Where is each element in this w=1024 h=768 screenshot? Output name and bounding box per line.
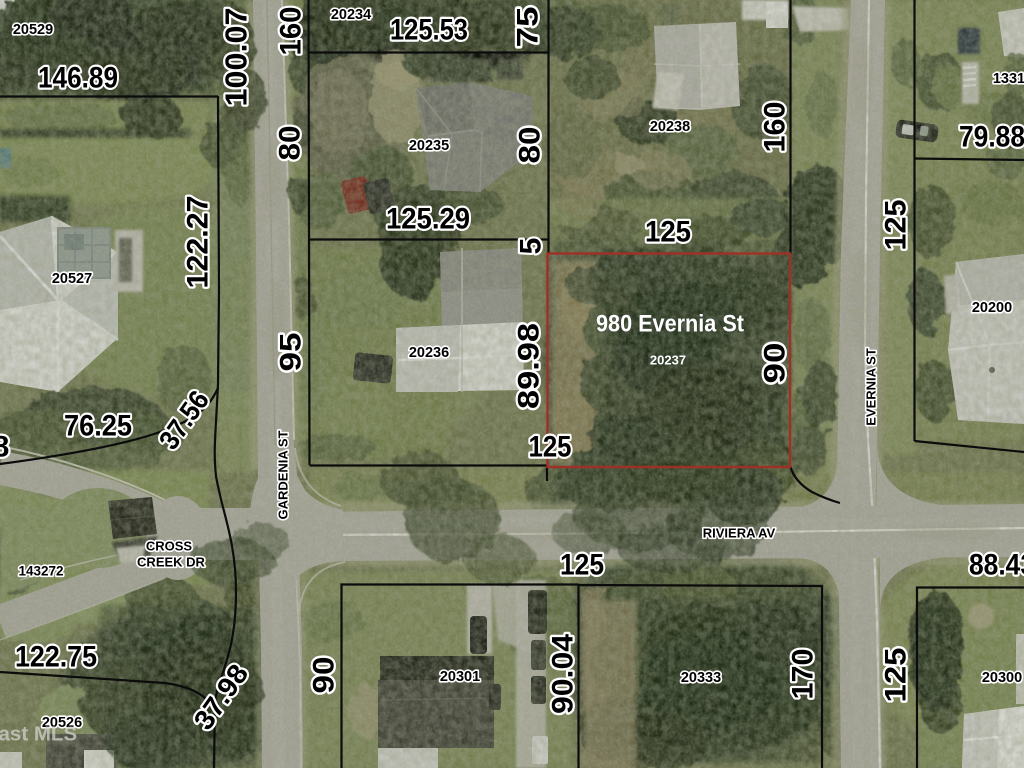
svg-text:13312: 13312 bbox=[993, 71, 1024, 87]
svg-text:5: 5 bbox=[515, 238, 548, 255]
svg-text:122.27: 122.27 bbox=[182, 196, 215, 289]
svg-text:20300: 20300 bbox=[982, 670, 1022, 686]
svg-text:GARDENIA ST: GARDENIA ST bbox=[276, 430, 291, 519]
svg-text:20234: 20234 bbox=[331, 7, 371, 23]
svg-text:90.04: 90.04 bbox=[547, 634, 580, 714]
svg-text:79.88: 79.88 bbox=[959, 121, 1024, 154]
svg-text:125: 125 bbox=[529, 431, 572, 464]
svg-text:980 Evernia St: 980 Evernia St bbox=[596, 311, 744, 338]
svg-text:125: 125 bbox=[560, 549, 604, 582]
svg-text:20333: 20333 bbox=[681, 670, 721, 686]
svg-text:160: 160 bbox=[275, 7, 308, 56]
svg-text:CREEK DR: CREEK DR bbox=[137, 555, 206, 570]
svg-text:122.75: 122.75 bbox=[15, 641, 97, 674]
svg-text:20235: 20235 bbox=[409, 138, 449, 154]
svg-text:90: 90 bbox=[308, 657, 341, 694]
svg-text:20237: 20237 bbox=[650, 353, 686, 368]
svg-text:8: 8 bbox=[0, 431, 9, 464]
svg-text:90: 90 bbox=[759, 343, 792, 384]
svg-text:125: 125 bbox=[645, 216, 691, 249]
svg-text:20301: 20301 bbox=[440, 669, 480, 685]
svg-text:20238: 20238 bbox=[650, 119, 690, 135]
svg-text:100.07: 100.07 bbox=[219, 8, 254, 107]
svg-text:75: 75 bbox=[512, 7, 545, 48]
svg-text:125: 125 bbox=[880, 200, 913, 251]
svg-text:125.53: 125.53 bbox=[390, 14, 468, 47]
svg-text:76.25: 76.25 bbox=[64, 410, 132, 443]
svg-text:95: 95 bbox=[275, 333, 308, 372]
svg-text:CROSS: CROSS bbox=[146, 539, 193, 554]
svg-text:20236: 20236 bbox=[409, 345, 449, 361]
svg-text:125.29: 125.29 bbox=[386, 203, 470, 236]
svg-text:143272: 143272 bbox=[18, 564, 63, 579]
svg-text:125: 125 bbox=[880, 648, 913, 703]
svg-text:160: 160 bbox=[759, 102, 792, 153]
svg-text:170: 170 bbox=[787, 649, 820, 700]
svg-text:oast MLS: oast MLS bbox=[0, 723, 77, 746]
svg-text:80: 80 bbox=[274, 126, 307, 161]
svg-text:89.98: 89.98 bbox=[513, 323, 546, 409]
svg-text:146.89: 146.89 bbox=[38, 62, 118, 95]
svg-text:EVERNIA ST: EVERNIA ST bbox=[864, 348, 879, 426]
svg-text:RIVIERA AV: RIVIERA AV bbox=[703, 526, 776, 541]
svg-text:20527: 20527 bbox=[52, 271, 92, 287]
svg-text:88.43: 88.43 bbox=[969, 549, 1024, 582]
svg-text:20200: 20200 bbox=[972, 300, 1012, 316]
svg-text:20529: 20529 bbox=[13, 22, 53, 38]
svg-text:80: 80 bbox=[514, 127, 547, 164]
